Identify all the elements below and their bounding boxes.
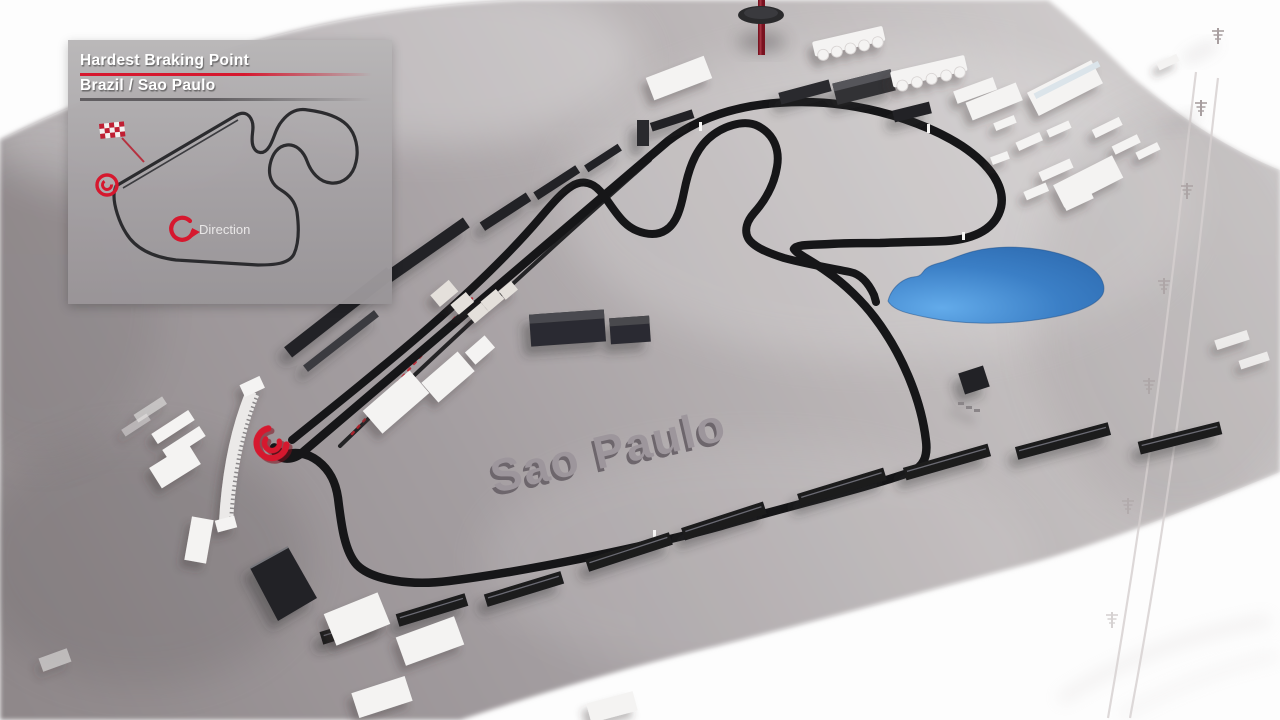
panel-location: Brazil / Sao Paulo (80, 77, 215, 95)
map-track-outline (114, 109, 357, 265)
tower (637, 120, 649, 146)
direction-arrow-icon (171, 218, 193, 240)
braking-marker-icon (97, 175, 117, 195)
map-braking-marker (97, 175, 117, 195)
direction-legend: Direction (171, 218, 250, 240)
map-pit-lane (123, 120, 238, 188)
braking-point-panel: Hardest Braking Point Brazil / Sao Paulo… (68, 40, 392, 304)
power-pylon-icon (1106, 612, 1118, 628)
panel-title: Hardest Braking Point (80, 52, 249, 70)
checkered-flag-icon (99, 121, 144, 162)
track-map-2d: Direction (78, 102, 378, 302)
location-underline (80, 98, 378, 101)
broadcast-graphic: Sao Paulo Sao Paulo (0, 0, 1280, 720)
title-underline (80, 73, 378, 76)
direction-label: Direction (199, 222, 250, 237)
power-pylon-icon (1212, 28, 1224, 44)
